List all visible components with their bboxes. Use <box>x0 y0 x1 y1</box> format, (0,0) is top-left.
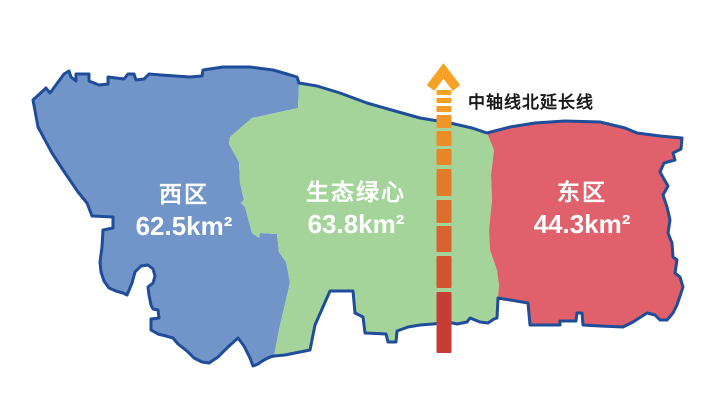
axis-dash <box>437 149 452 165</box>
axis-dash <box>437 226 452 252</box>
map-infographic: 西区 62.5km² 生态绿心 63.8km² 东区 44.3km² 中轴线北延… <box>0 0 718 407</box>
axis-arrow-icon <box>431 71 457 88</box>
axis-dash <box>437 90 452 95</box>
axis-dash <box>437 256 452 288</box>
axis-dash <box>437 169 452 196</box>
axis-dash <box>437 292 452 353</box>
axis-dash <box>437 200 452 223</box>
region-east-shape <box>487 121 683 327</box>
axis-dash <box>437 98 452 103</box>
axis-dash <box>437 106 452 112</box>
map-canvas <box>0 0 718 407</box>
axis-label: 中轴线北延长线 <box>468 88 594 113</box>
axis-dash <box>437 115 452 128</box>
axis-dash <box>437 131 452 146</box>
